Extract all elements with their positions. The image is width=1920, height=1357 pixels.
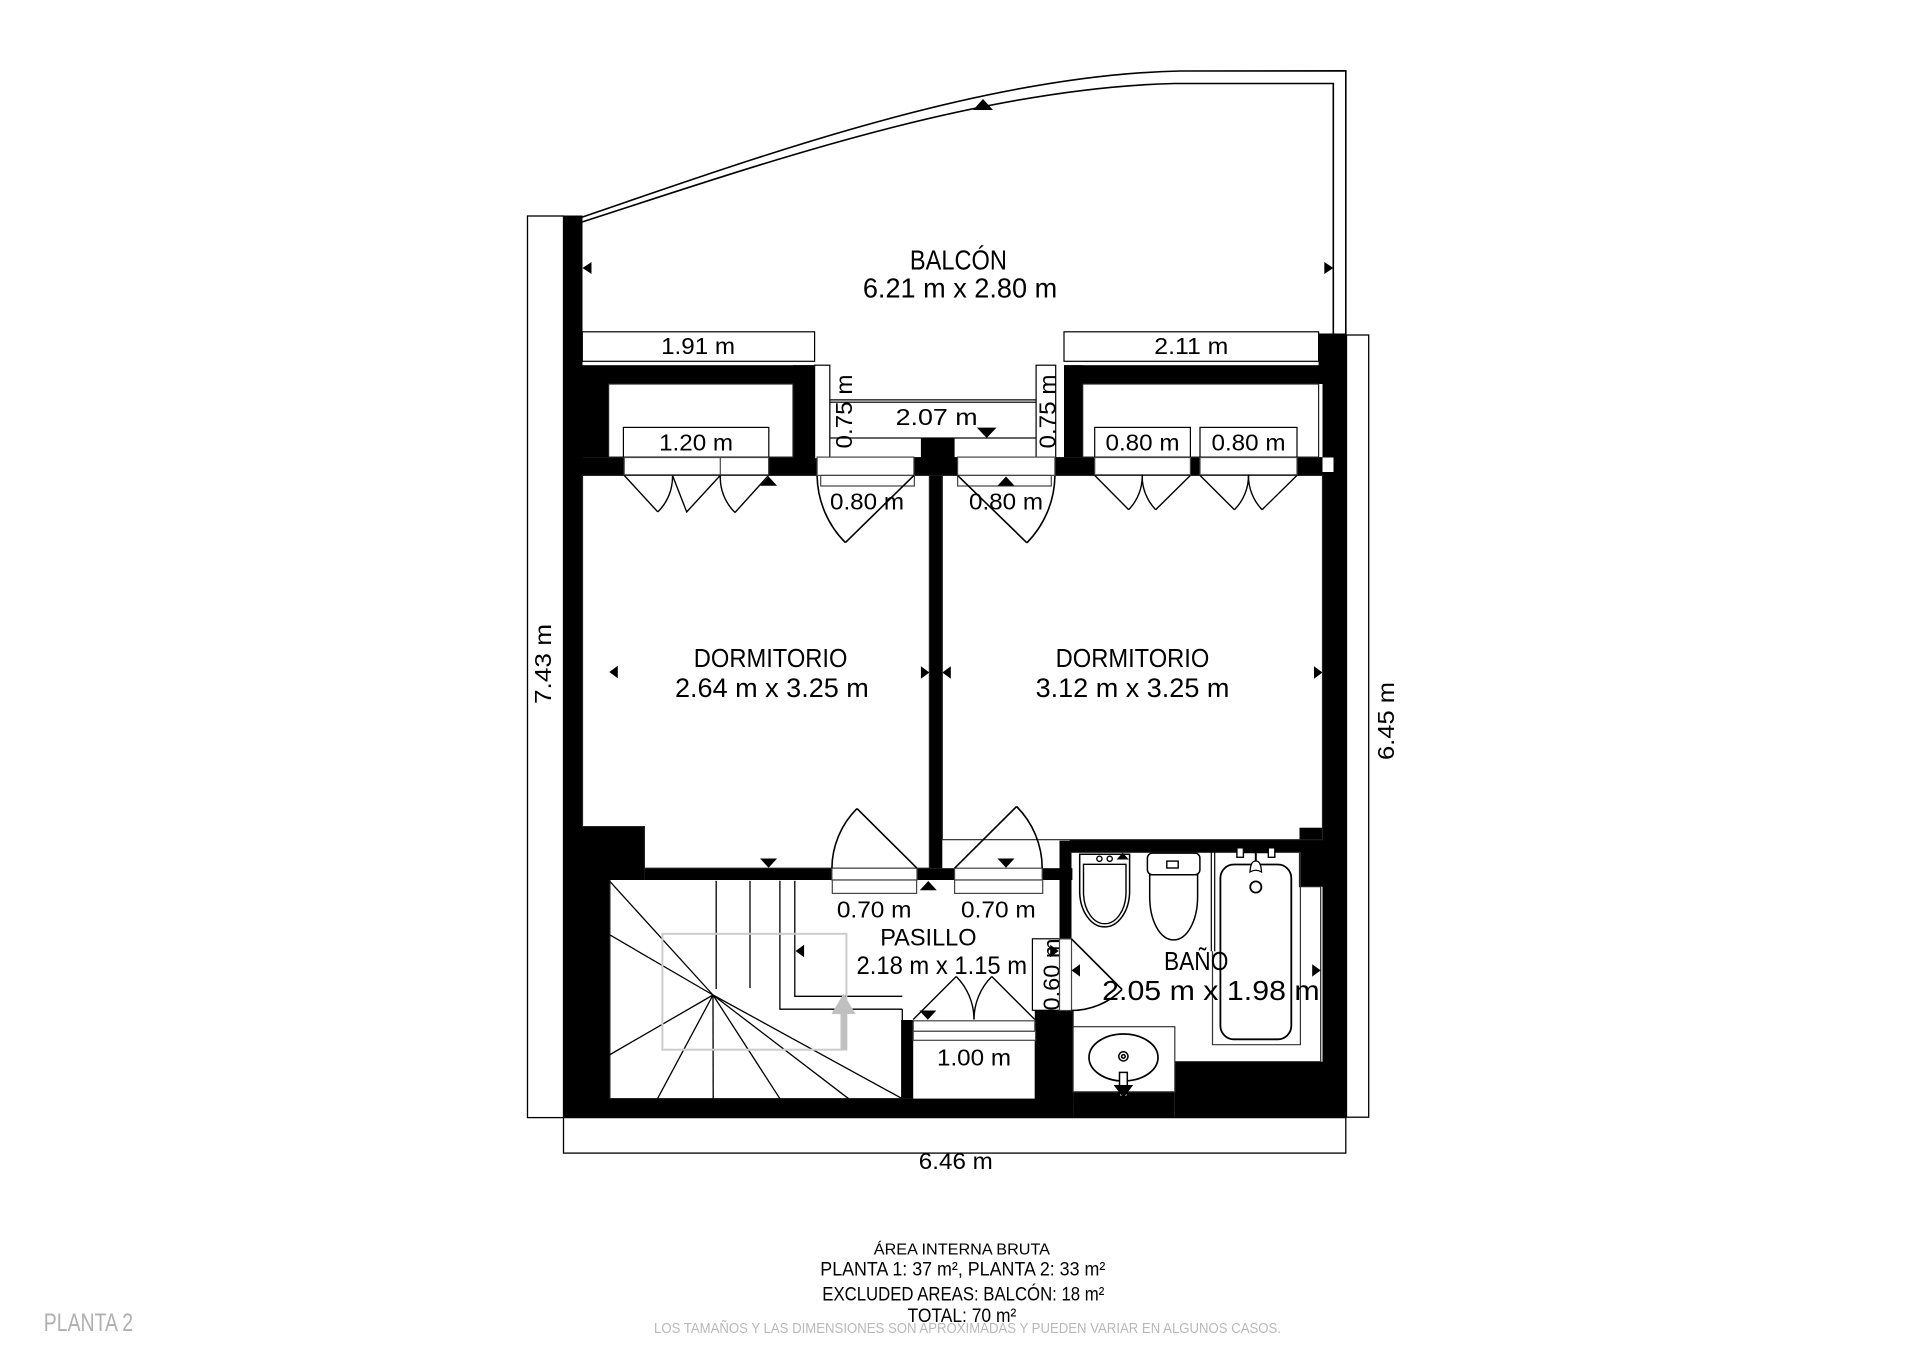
svg-text:0.80 m: 0.80 m <box>1106 430 1180 456</box>
svg-text:1.91 m: 1.91 m <box>661 333 735 359</box>
svg-text:0.75 m: 0.75 m <box>831 375 857 449</box>
svg-text:0.80 m: 0.80 m <box>830 489 904 515</box>
svg-text:ÁREA INTERNA BRUTA: ÁREA INTERNA BRUTA <box>874 1240 1051 1259</box>
svg-text:LOS TAMAÑOS Y LAS DIMENSIONES: LOS TAMAÑOS Y LAS DIMENSIONES SON APROXI… <box>654 1320 1281 1337</box>
svg-text:0.75 m: 0.75 m <box>1035 375 1061 449</box>
svg-text:PLANTA 1: 37 m², PLANTA 2: 33: PLANTA 1: 37 m², PLANTA 2: 33 m² <box>820 1259 1105 1280</box>
svg-text:2.11 m: 2.11 m <box>1154 333 1228 359</box>
svg-text:0.70 m: 0.70 m <box>837 897 912 923</box>
svg-text:6.45 m: 6.45 m <box>1373 682 1399 760</box>
svg-text:DORMITORIO: DORMITORIO <box>694 643 848 673</box>
svg-text:EXCLUDED AREAS: BALCÓN: 18 m²: EXCLUDED AREAS: BALCÓN: 18 m² <box>822 1284 1104 1306</box>
svg-text:2.18 m x 1.15 m: 2.18 m x 1.15 m <box>857 952 1028 980</box>
svg-text:3.12 m x 3.25 m: 3.12 m x 3.25 m <box>1036 673 1230 703</box>
svg-text:0.80 m: 0.80 m <box>969 489 1043 515</box>
svg-text:6.21 m x 2.80 m: 6.21 m x 2.80 m <box>863 273 1057 304</box>
svg-text:2.64 m x 3.25 m: 2.64 m x 3.25 m <box>675 673 869 703</box>
svg-text:0.70 m: 0.70 m <box>961 897 1036 923</box>
svg-text:2.07 m: 2.07 m <box>896 404 978 430</box>
svg-text:BAÑO: BAÑO <box>1164 946 1228 976</box>
svg-text:1.20 m: 1.20 m <box>659 430 733 456</box>
svg-text:PLANTA 2: PLANTA 2 <box>44 1309 133 1337</box>
svg-text:DORMITORIO: DORMITORIO <box>1056 643 1210 673</box>
svg-text:BALCÓN: BALCÓN <box>910 244 1007 275</box>
svg-text:6.46 m: 6.46 m <box>919 1148 993 1174</box>
svg-text:2.05 m x 1.98 m: 2.05 m x 1.98 m <box>1102 975 1320 1006</box>
svg-text:0.80 m: 0.80 m <box>1212 430 1286 456</box>
svg-text:1.00 m: 1.00 m <box>937 1045 1011 1071</box>
svg-text:7.43 m: 7.43 m <box>530 624 556 704</box>
svg-text:PASILLO: PASILLO <box>880 924 976 951</box>
